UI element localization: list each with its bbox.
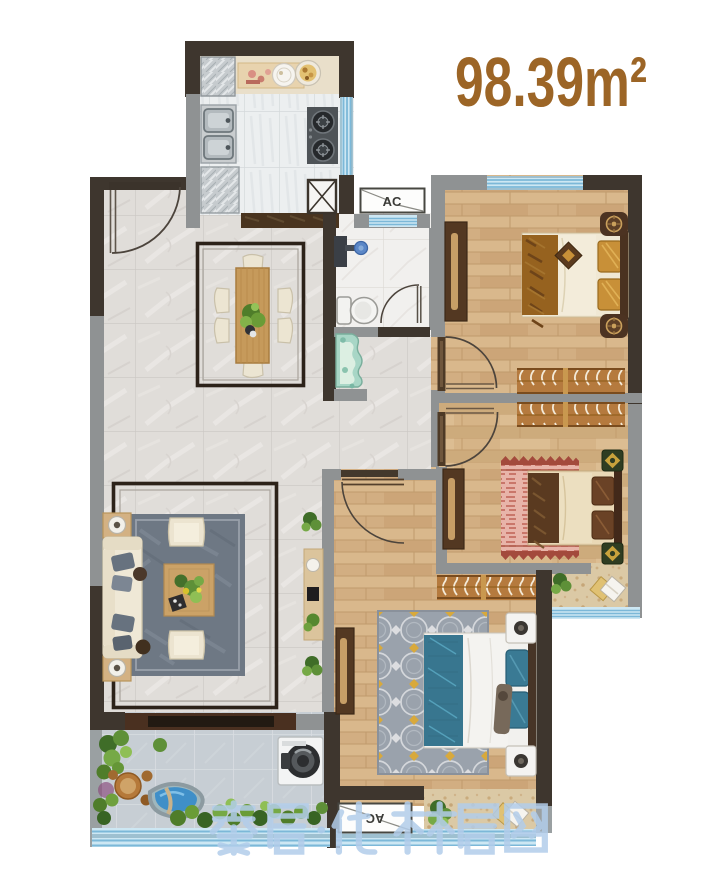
svg-text:98.39m²: 98.39m² [455, 43, 647, 121]
svg-text:AC: AC [383, 194, 402, 209]
